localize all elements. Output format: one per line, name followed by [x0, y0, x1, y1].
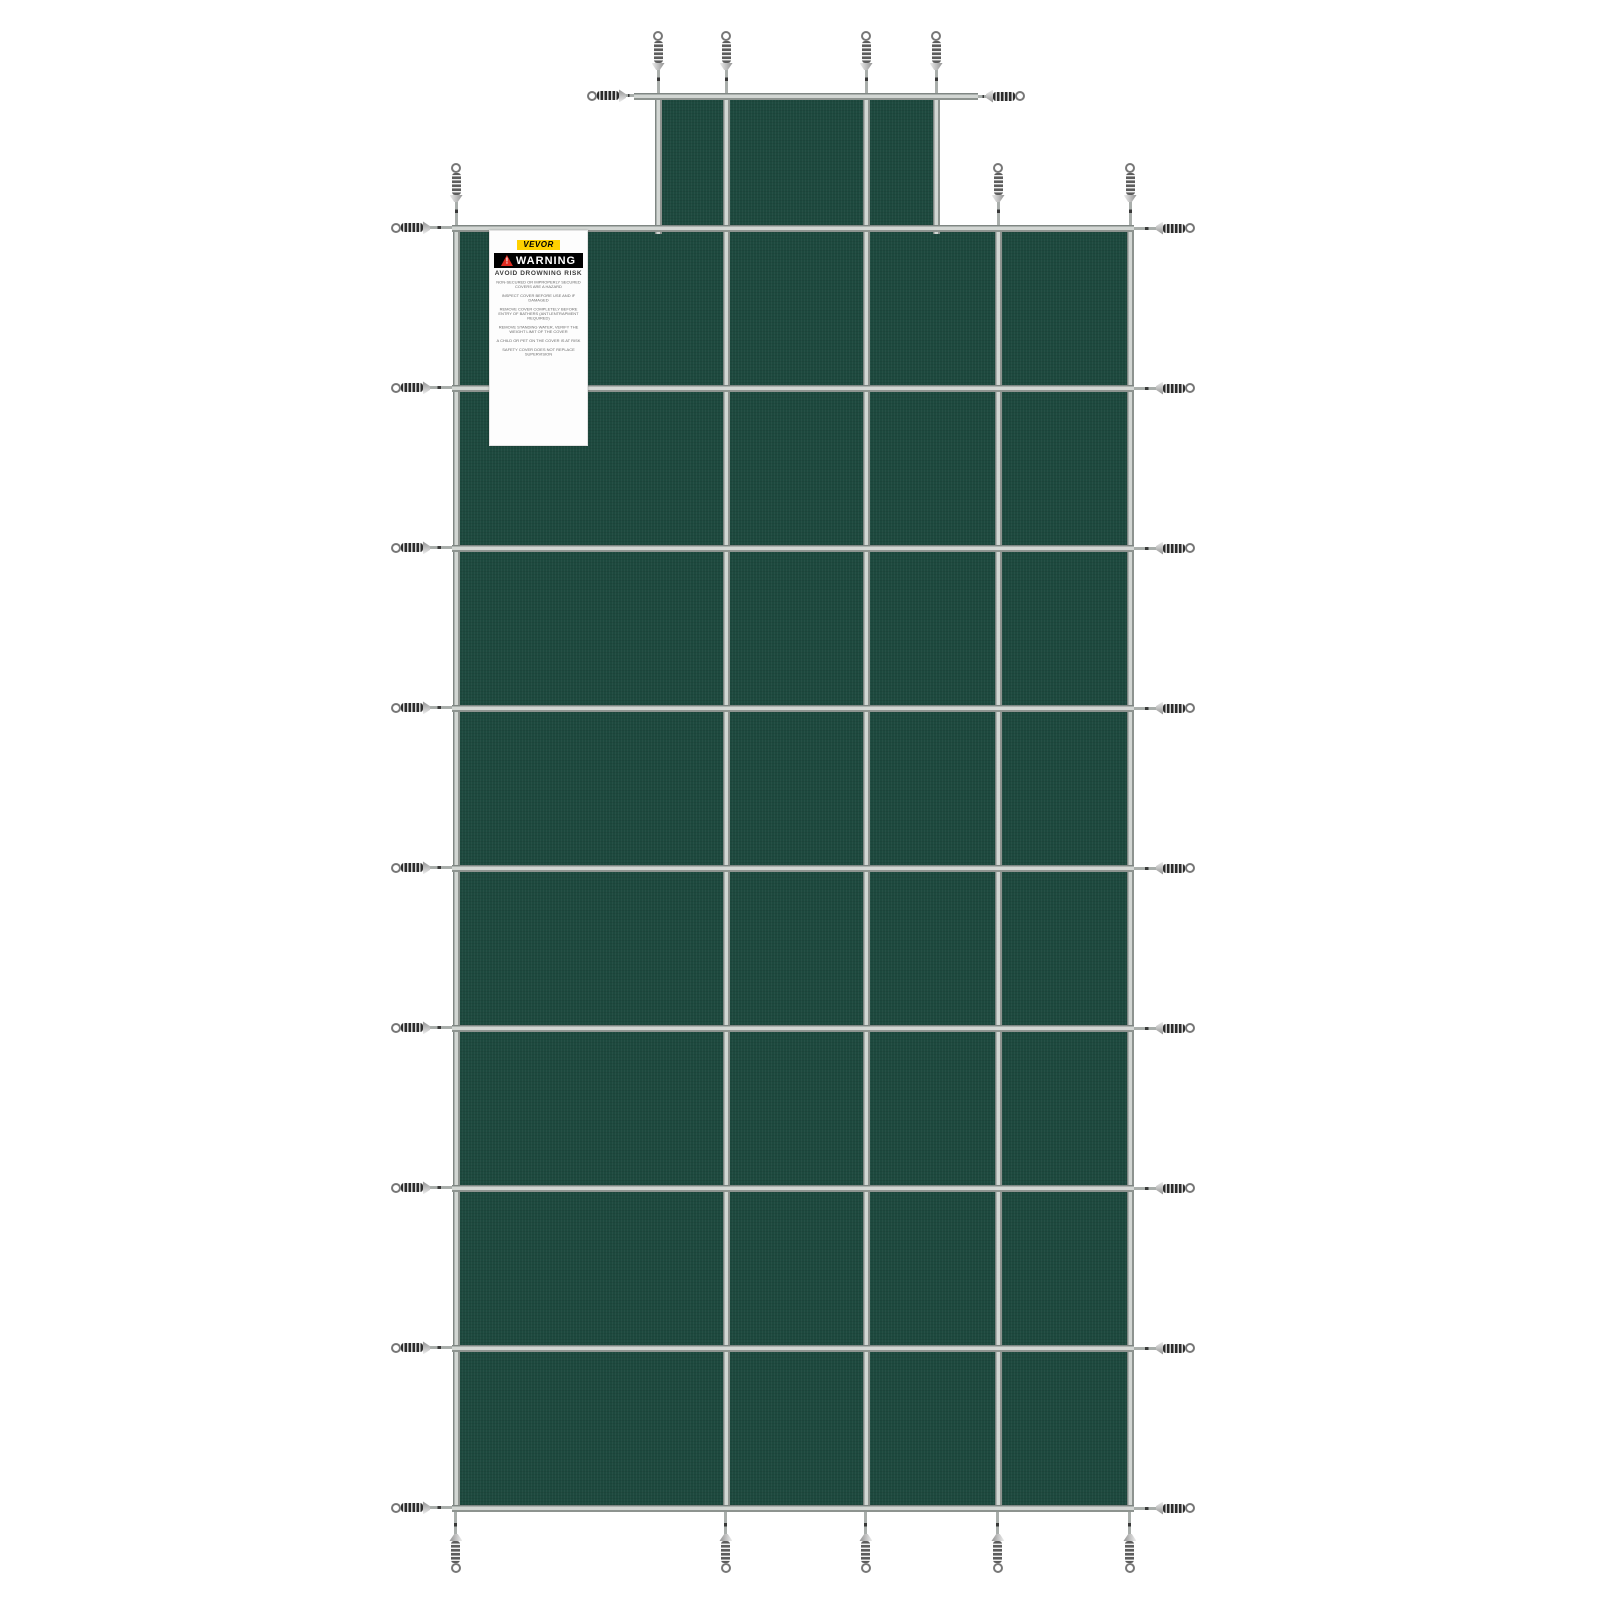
spring — [391, 380, 456, 396]
spring-ring — [587, 91, 597, 101]
spring-coil — [1163, 1184, 1185, 1193]
spring — [858, 31, 874, 96]
spring-rod — [978, 95, 986, 98]
spring-ring — [391, 1343, 401, 1353]
spring-ring — [451, 163, 461, 173]
spring — [391, 540, 456, 556]
spring-cone — [423, 1182, 430, 1195]
spring-ring — [1125, 1563, 1135, 1573]
spring-ring — [993, 1563, 1003, 1573]
spring-coil — [1163, 704, 1185, 713]
strap-horizontal — [452, 1025, 1134, 1032]
spring — [978, 88, 1025, 104]
strap-horizontal — [452, 1185, 1134, 1192]
strap-horizontal-step-bar — [634, 93, 978, 100]
strap-vertical-step — [863, 93, 870, 234]
spring — [1130, 380, 1195, 396]
spring-coil — [1163, 1024, 1185, 1033]
spring-ring — [391, 1503, 401, 1513]
spring-cone — [423, 702, 430, 715]
spring-ring — [721, 31, 731, 41]
warning-fineprint-line: REMOVE STANDING WATER, VERIFY THE WEIGHT… — [494, 325, 583, 334]
brand-badge: VEVOR — [517, 240, 560, 250]
spring-ring — [653, 31, 663, 41]
spring-cone — [423, 1022, 430, 1035]
spring-coil — [1163, 1344, 1185, 1353]
spring-coil — [401, 704, 423, 713]
spring-coil — [401, 224, 423, 233]
spring-coil — [722, 41, 731, 63]
spring-cone — [1124, 1534, 1137, 1541]
spring-ring — [1185, 1343, 1195, 1353]
spring — [1130, 1340, 1195, 1356]
spring — [391, 1020, 456, 1036]
spring-coil — [1163, 544, 1185, 553]
spring-cone — [423, 382, 430, 395]
spring-cone — [992, 195, 1005, 202]
spring-ring — [1185, 1023, 1195, 1033]
spring-coil — [862, 41, 871, 63]
spring-cone — [1156, 1022, 1163, 1035]
spring-coil — [401, 1024, 423, 1033]
spring-coil — [401, 1504, 423, 1513]
spring-cone — [423, 862, 430, 875]
spring-coil — [1126, 173, 1135, 195]
spring-coil — [401, 384, 423, 393]
spring-cone — [652, 63, 665, 70]
spring-coil — [994, 173, 1003, 195]
spring-cone — [423, 542, 430, 555]
spring-ring — [391, 223, 401, 233]
spring-coil — [1163, 1504, 1185, 1513]
spring-ring — [391, 1023, 401, 1033]
warning-subtitle: AVOID DROWNING RISK — [494, 270, 583, 277]
warning-fineprint-line: A CHILD OR PET ON THE COVER IS AT RISK — [494, 339, 583, 344]
spring-cone — [720, 1534, 733, 1541]
spring — [1130, 1500, 1195, 1516]
spring-coil — [401, 1184, 423, 1193]
warning-triangle-icon — [501, 255, 513, 266]
spring-ring — [721, 1563, 731, 1573]
warning-bar: WARNING — [494, 253, 583, 268]
spring — [391, 1180, 456, 1196]
spring — [650, 31, 666, 96]
spring-coil — [1163, 864, 1185, 873]
spring-coil — [1163, 384, 1185, 393]
spring — [587, 88, 634, 104]
spring-ring — [1185, 1183, 1195, 1193]
spring-cone — [423, 222, 430, 235]
spring-coil — [401, 544, 423, 553]
spring-ring — [1185, 383, 1195, 393]
spring-coil — [993, 92, 1015, 101]
spring-cone — [1156, 1342, 1163, 1355]
strap-horizontal — [452, 865, 1134, 872]
spring — [448, 163, 464, 228]
spring-cone — [930, 63, 943, 70]
spring-cone — [1156, 222, 1163, 235]
strap-vertical-step — [933, 93, 940, 234]
warning-fineprint-line: NON-SECURED OR IMPROPERLY SECURED COVERS… — [494, 280, 583, 289]
spring-ring — [993, 163, 1003, 173]
spring-cone — [450, 195, 463, 202]
spring — [1130, 220, 1195, 236]
strap-vertical-step — [655, 93, 662, 234]
spring-coil — [401, 864, 423, 873]
spring-ring — [1185, 863, 1195, 873]
spring-cone — [423, 1502, 430, 1515]
spring — [990, 163, 1006, 228]
spring — [1130, 700, 1195, 716]
spring-coil — [1163, 224, 1185, 233]
pool-safety-cover-photo: VEVOR WARNING AVOID DROWNING RISK NON-SE… — [0, 0, 1600, 1600]
strap-vertical-step — [723, 93, 730, 234]
warning-fineprint-line: SAFETY COVER DOES NOT REPLACE SUPERVISIO… — [494, 348, 583, 357]
spring-coil — [1126, 1541, 1135, 1563]
spring — [391, 1340, 456, 1356]
strap-horizontal — [452, 705, 1134, 712]
spring — [990, 1508, 1006, 1573]
spring-coil — [932, 41, 941, 63]
spring — [391, 220, 456, 236]
spring — [391, 1500, 456, 1516]
spring-ring — [391, 383, 401, 393]
spring-cone — [1156, 382, 1163, 395]
spring-ring — [391, 543, 401, 553]
spring — [1130, 1180, 1195, 1196]
warning-fineprint: NON-SECURED OR IMPROPERLY SECURED COVERS… — [494, 280, 583, 357]
spring — [718, 31, 734, 96]
spring-ring — [861, 31, 871, 41]
spring-cone — [720, 63, 733, 70]
strap-horizontal — [452, 1505, 1134, 1512]
spring — [1130, 1020, 1195, 1036]
spring-coil — [722, 1541, 731, 1563]
warning-title: WARNING — [516, 255, 576, 267]
spring — [718, 1508, 734, 1573]
warning-label: VEVOR WARNING AVOID DROWNING RISK NON-SE… — [489, 230, 588, 446]
spring-ring — [391, 703, 401, 713]
spring-ring — [391, 1183, 401, 1193]
spring-ring — [1185, 543, 1195, 553]
spring — [1122, 1508, 1138, 1573]
strap-horizontal — [452, 1345, 1134, 1352]
spring-coil — [597, 92, 619, 101]
spring — [391, 700, 456, 716]
spring-cone — [860, 1534, 873, 1541]
spring — [1130, 860, 1195, 876]
spring — [391, 860, 456, 876]
spring — [1122, 163, 1138, 228]
spring-cone — [1156, 702, 1163, 715]
spring-cone — [1156, 1182, 1163, 1195]
spring-ring — [1015, 91, 1025, 101]
spring-cone — [450, 1534, 463, 1541]
spring-cone — [1156, 542, 1163, 555]
spring-ring — [1185, 223, 1195, 233]
spring-coil — [452, 1541, 461, 1563]
spring-cone — [1156, 1502, 1163, 1515]
spring-ring — [451, 1563, 461, 1573]
spring-cone — [423, 1342, 430, 1355]
spring-coil — [862, 1541, 871, 1563]
spring-cone — [1124, 195, 1137, 202]
spring — [858, 1508, 874, 1573]
spring-ring — [1185, 1503, 1195, 1513]
spring-coil — [994, 1541, 1003, 1563]
spring-coil — [654, 41, 663, 63]
cover-panel-step — [658, 96, 936, 231]
spring-ring — [931, 31, 941, 41]
warning-fineprint-line: INSPECT COVER BEFORE USE AND IF DAMAGED — [494, 294, 583, 303]
spring-ring — [1185, 703, 1195, 713]
warning-fineprint-line: REMOVE COVER COMPLETELY BEFORE ENTRY OF … — [494, 307, 583, 321]
spring-cone — [986, 90, 993, 103]
spring — [928, 31, 944, 96]
spring-ring — [1125, 163, 1135, 173]
spring-ring — [391, 863, 401, 873]
spring-cone — [860, 63, 873, 70]
strap-horizontal — [452, 545, 1134, 552]
spring-cone — [619, 90, 626, 103]
spring-rod — [626, 95, 634, 98]
spring-cone — [1156, 862, 1163, 875]
spring — [1130, 540, 1195, 556]
spring-cone — [992, 1534, 1005, 1541]
spring-coil — [401, 1344, 423, 1353]
spring — [448, 1508, 464, 1573]
spring-coil — [452, 173, 461, 195]
spring-ring — [861, 1563, 871, 1573]
